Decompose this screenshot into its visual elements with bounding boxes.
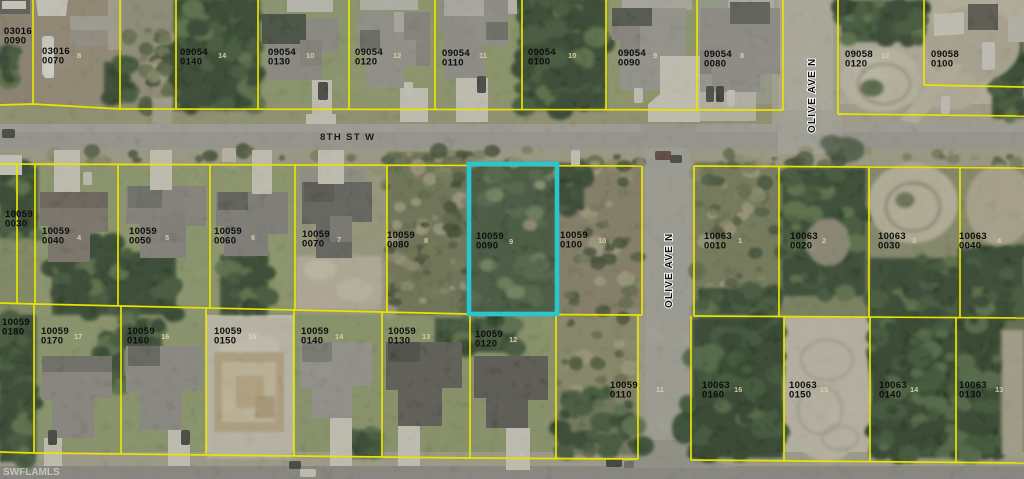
svg-text:16: 16 bbox=[161, 332, 169, 341]
svg-text:OLIVE AVE N: OLIVE AVE N bbox=[807, 58, 818, 133]
svg-text:8: 8 bbox=[740, 51, 744, 60]
svg-text:3: 3 bbox=[912, 236, 916, 245]
svg-text:SWFLAMLS: SWFLAMLS bbox=[3, 467, 60, 478]
svg-text:17: 17 bbox=[74, 332, 82, 341]
svg-text:13: 13 bbox=[422, 332, 430, 341]
svg-text:14: 14 bbox=[335, 332, 344, 341]
svg-text:8: 8 bbox=[77, 51, 81, 60]
svg-text:10: 10 bbox=[598, 236, 606, 245]
svg-text:8: 8 bbox=[424, 236, 428, 245]
svg-text:8TH ST W: 8TH ST W bbox=[320, 132, 376, 143]
svg-text:5: 5 bbox=[165, 233, 169, 242]
svg-text:7: 7 bbox=[337, 235, 341, 244]
svg-text:16: 16 bbox=[734, 385, 742, 394]
svg-text:14: 14 bbox=[910, 385, 919, 394]
svg-text:9: 9 bbox=[509, 237, 513, 246]
svg-text:2: 2 bbox=[822, 236, 826, 245]
svg-text:10: 10 bbox=[306, 51, 314, 60]
svg-text:13: 13 bbox=[995, 385, 1003, 394]
svg-text:14: 14 bbox=[218, 51, 227, 60]
svg-text:OLIVE AVE N: OLIVE AVE N bbox=[664, 233, 675, 308]
svg-text:12: 12 bbox=[393, 51, 401, 60]
svg-text:12: 12 bbox=[509, 335, 517, 344]
svg-text:6: 6 bbox=[251, 233, 255, 242]
svg-text:10: 10 bbox=[568, 51, 576, 60]
svg-text:1: 1 bbox=[738, 236, 742, 245]
svg-text:12: 12 bbox=[881, 51, 889, 60]
svg-text:11: 11 bbox=[656, 385, 664, 394]
svg-text:9: 9 bbox=[653, 51, 657, 60]
svg-text:15: 15 bbox=[248, 332, 256, 341]
svg-text:15: 15 bbox=[820, 385, 828, 394]
svg-text:11: 11 bbox=[479, 51, 487, 60]
